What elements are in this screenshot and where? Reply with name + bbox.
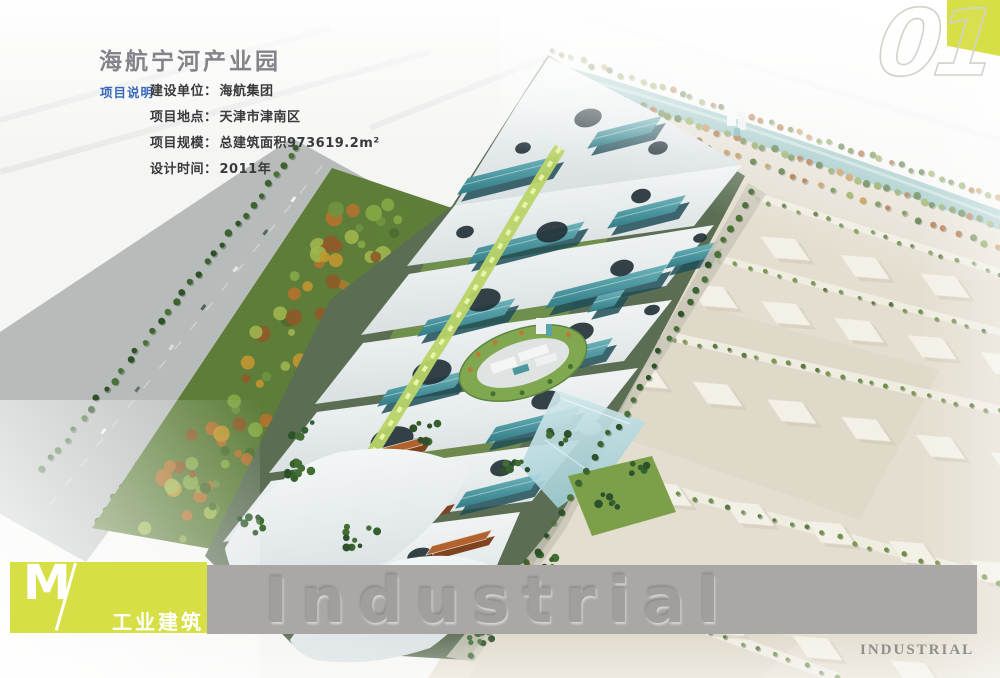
project-info-label: 项目说明 — [100, 82, 154, 101]
project-info: 建设单位：海航集团 项目地点：天津市津南区 项目规模：总建筑面积973619.2… — [150, 80, 380, 184]
category-label: 工业建筑 — [112, 606, 204, 635]
page-number: 01 — [872, 0, 995, 97]
center-tower — [536, 318, 546, 334]
info-row-location: 项目地点：天津市津南区 — [150, 106, 380, 132]
info-row-builder: 建设单位：海航集团 — [150, 80, 380, 106]
footer-gray-band: Industrial — [207, 565, 977, 634]
presentation-board: 海航宁河产业园 项目说明 建设单位：海航集团 项目地点：天津市津南区 项目规模：… — [0, 0, 1000, 678]
info-row-year: 设计时间：2011年 — [150, 158, 380, 184]
info-row-scale: 项目规模：总建筑面积973619.2m² — [150, 132, 380, 158]
page-title: 海航宁河产业园 — [99, 42, 281, 76]
industrial-watermark: Industrial — [265, 565, 732, 634]
industrial-corner-label: INDUSTRIAL — [860, 642, 974, 659]
